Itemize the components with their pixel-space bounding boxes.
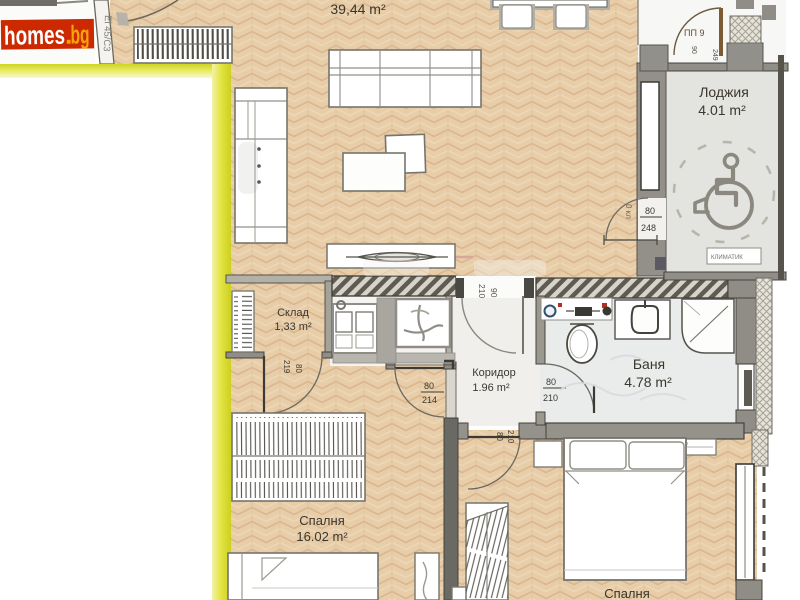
svg-text:El 45/C3: El 45/C3: [101, 15, 113, 52]
svg-text:80: 80: [495, 432, 504, 441]
svg-text:Спалня: Спалня: [604, 586, 649, 600]
svg-text:90: 90: [690, 46, 697, 54]
svg-text:219: 219: [282, 360, 291, 374]
svg-text:bg: bg: [70, 19, 89, 49]
svg-text:39,44 m²: 39,44 m²: [330, 1, 386, 17]
svg-text:ПП 9: ПП 9: [684, 28, 704, 38]
svg-text:210: 210: [477, 284, 487, 298]
svg-text:1,33 m²: 1,33 m²: [274, 321, 312, 333]
svg-text:248: 248: [641, 223, 656, 233]
svg-text:249: 249: [711, 49, 718, 61]
svg-text:80: 80: [546, 377, 556, 387]
svg-text:214: 214: [422, 395, 437, 405]
svg-text:210: 210: [506, 430, 515, 444]
svg-text:Спалня: Спалня: [299, 513, 344, 528]
svg-text:80: 80: [424, 381, 434, 391]
svg-text:Коридор: Коридор: [472, 367, 515, 379]
svg-text:Лоджия: Лоджия: [699, 84, 749, 100]
svg-text:homes: homes: [4, 20, 65, 51]
svg-text:16.02 m²: 16.02 m²: [296, 529, 348, 544]
svg-text:Склад: Склад: [277, 307, 309, 319]
svg-text:Баня: Баня: [633, 356, 665, 372]
svg-text:КЛИМАТИК: КЛИМАТИК: [711, 255, 743, 261]
svg-text:80: 80: [645, 206, 655, 216]
svg-text:90: 90: [489, 288, 499, 298]
svg-text:210: 210: [543, 393, 558, 403]
svg-text:0 кл: 0 кл: [624, 204, 633, 219]
svg-text:80: 80: [294, 364, 303, 373]
svg-text:4.01 m²: 4.01 m²: [698, 102, 746, 118]
svg-text:1.96 m²: 1.96 m²: [472, 382, 510, 394]
svg-text:4.78 m²: 4.78 m²: [624, 374, 672, 390]
